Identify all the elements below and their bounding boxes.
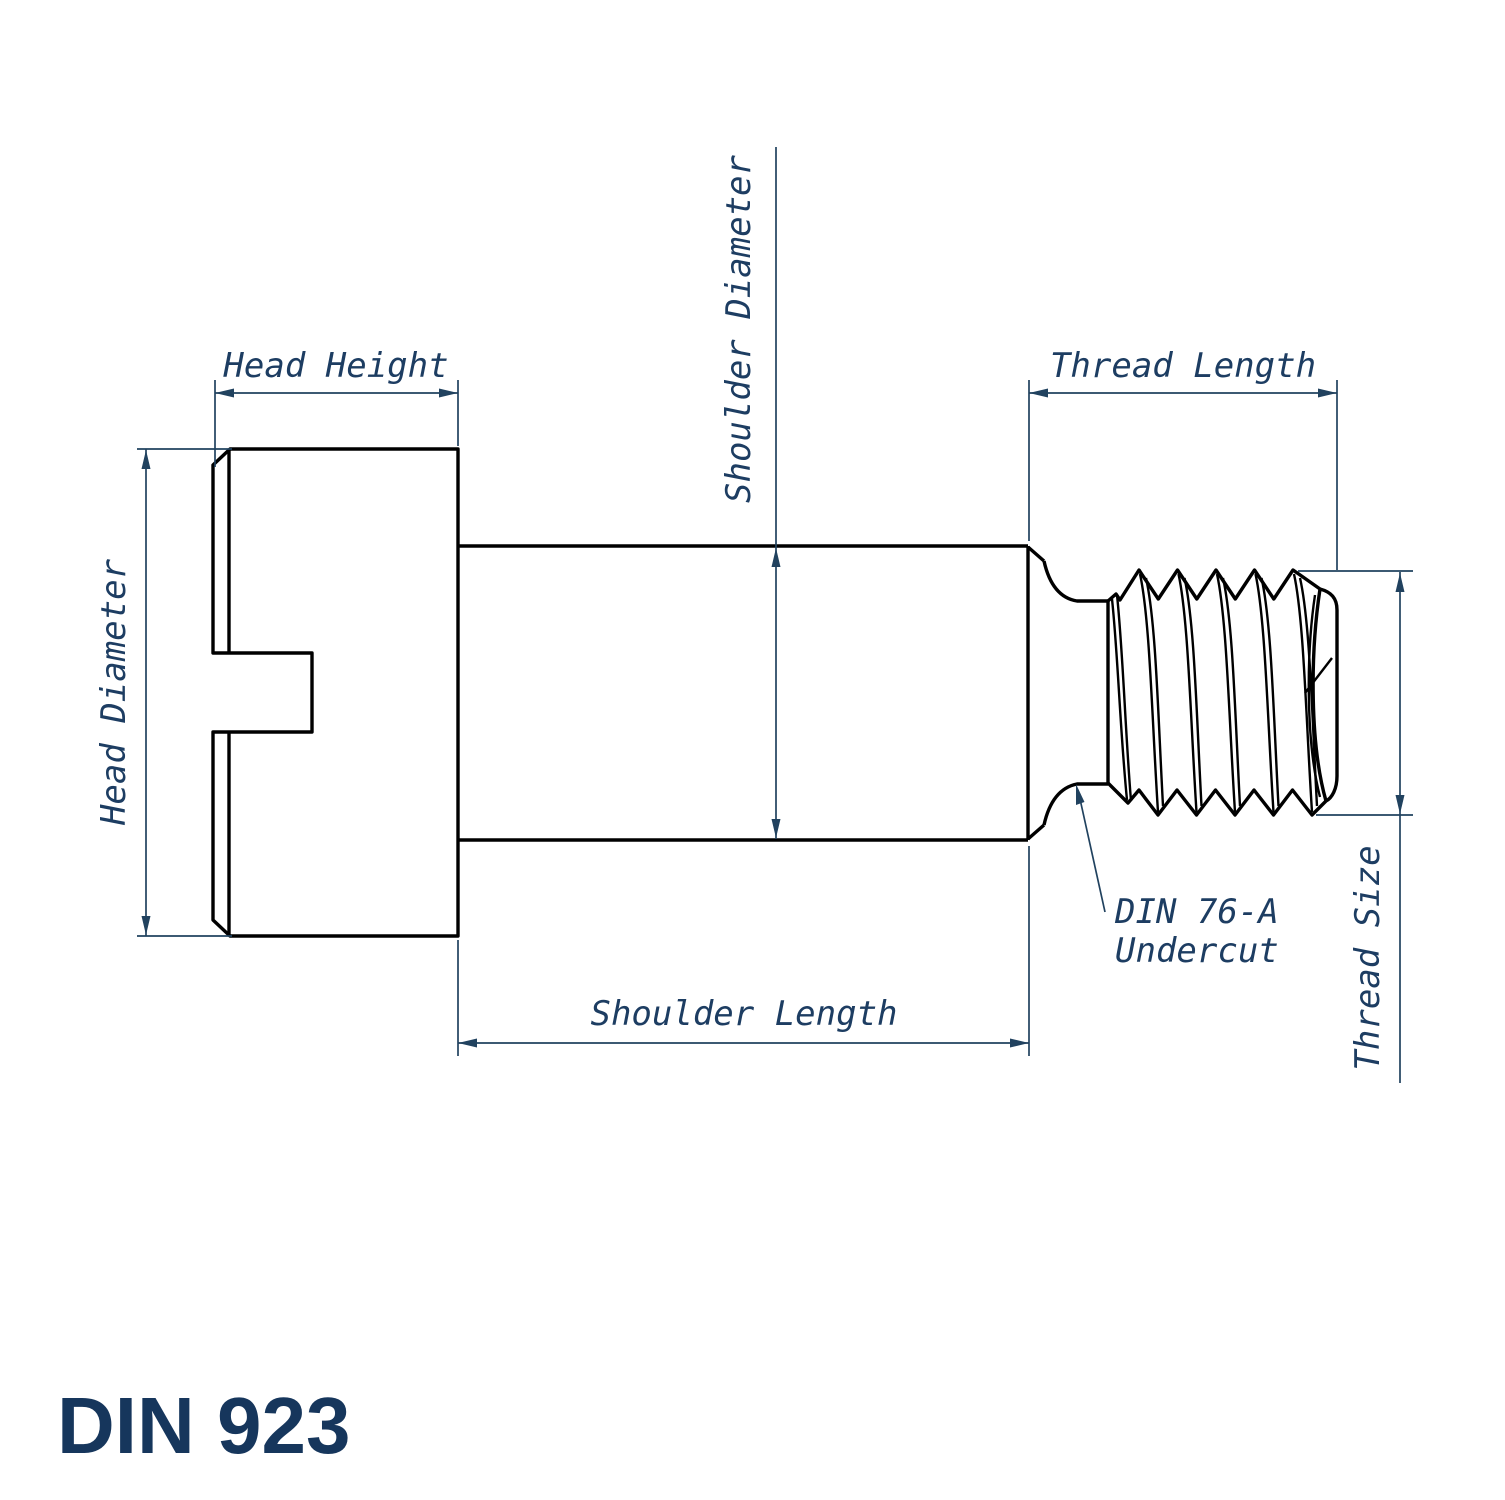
arrowhead (1010, 1039, 1029, 1048)
shoulder-end-chamfer-bottom (1028, 825, 1044, 839)
arrowhead (1318, 389, 1337, 398)
thread-flank-line (1256, 574, 1274, 812)
arrowhead (458, 1039, 477, 1048)
head-height-label: Head Height (222, 346, 448, 386)
screw-outline (213, 449, 1337, 936)
leader-arrowhead (1076, 784, 1085, 805)
shoulder-diameter-label: Shoulder Diameter (719, 154, 759, 503)
arrowhead (1396, 795, 1405, 814)
labels: Head Height Thread Length Head Diameter … (57, 154, 1388, 1470)
head-diameter-label: Head Diameter (94, 558, 134, 826)
thread-end-cap-right (1320, 589, 1337, 801)
arrowhead (439, 389, 458, 398)
arrowhead (142, 450, 151, 469)
technical-drawing-page: Head Height Thread Length Head Diameter … (0, 0, 1505, 1500)
undercut-annotation-line2: Undercut (1115, 931, 1279, 971)
thread-flank-line (1217, 574, 1235, 812)
arrowhead (772, 548, 781, 567)
screw-head-outline (213, 449, 458, 936)
thread-size-label: Thread Size (1348, 845, 1388, 1070)
thread-flank-line (1179, 574, 1197, 812)
undercut-leader-line (1078, 790, 1105, 912)
arrowhead (1029, 389, 1048, 398)
undercut-top-profile (1044, 561, 1108, 601)
arrowhead (772, 819, 781, 838)
undercut-annotation-line1: DIN 76-A (1114, 892, 1279, 932)
thread-flank-line (1140, 574, 1158, 812)
arrowhead (1396, 573, 1405, 592)
arrowhead (215, 389, 234, 398)
drawing-title: DIN 923 (57, 1381, 350, 1470)
shoulder-length-label: Shoulder Length (590, 994, 897, 1034)
shoulder-end-chamfer-top (1028, 547, 1044, 561)
thread-bottom-profile (1108, 783, 1326, 815)
thread-length-label: Thread Length (1050, 346, 1316, 386)
arrowhead (142, 916, 151, 935)
din-923-shoulder-screw-drawing: Head Height Thread Length Head Diameter … (0, 0, 1505, 1500)
